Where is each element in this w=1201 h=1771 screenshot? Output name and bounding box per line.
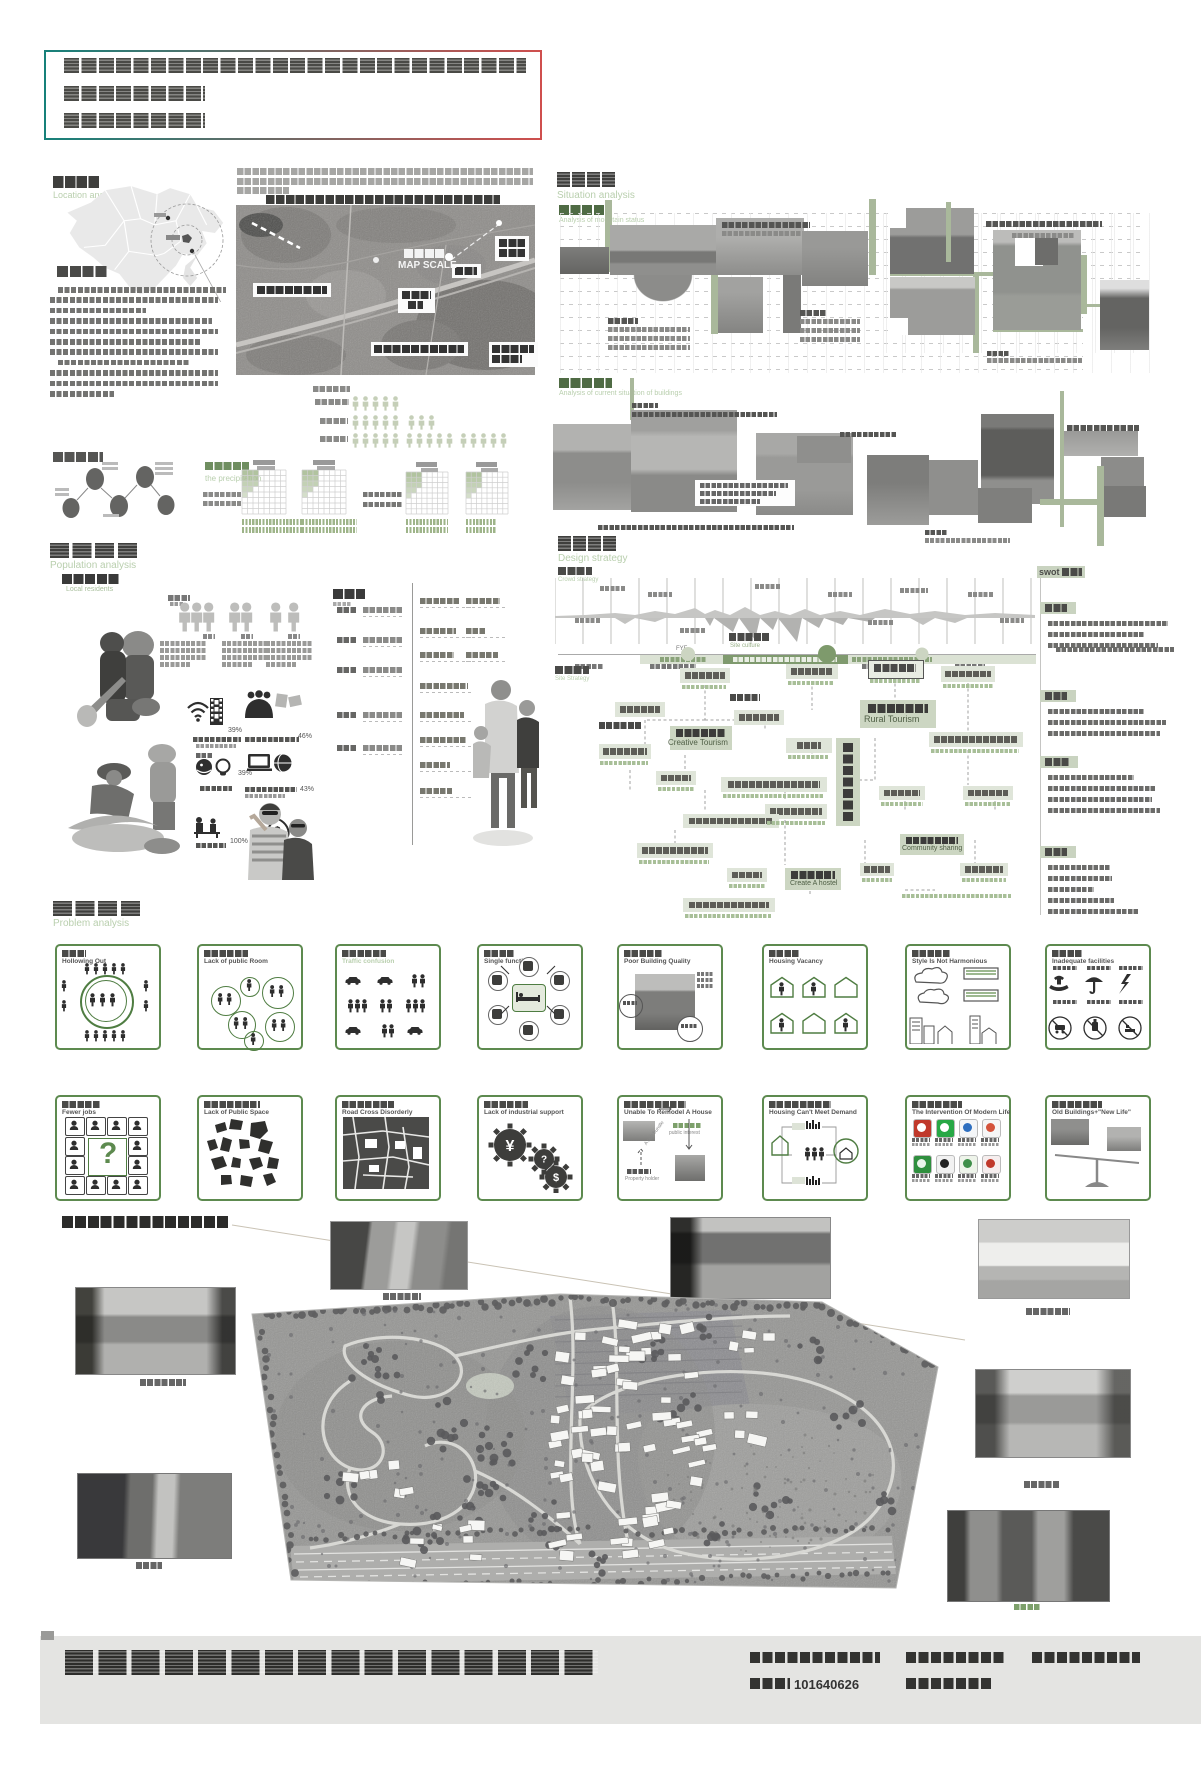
svg-text:A sub bundle: A sub bundle [643, 1120, 666, 1147]
svg-text:$: $ [553, 1172, 559, 1184]
svg-text:¥: ¥ [506, 1138, 515, 1155]
